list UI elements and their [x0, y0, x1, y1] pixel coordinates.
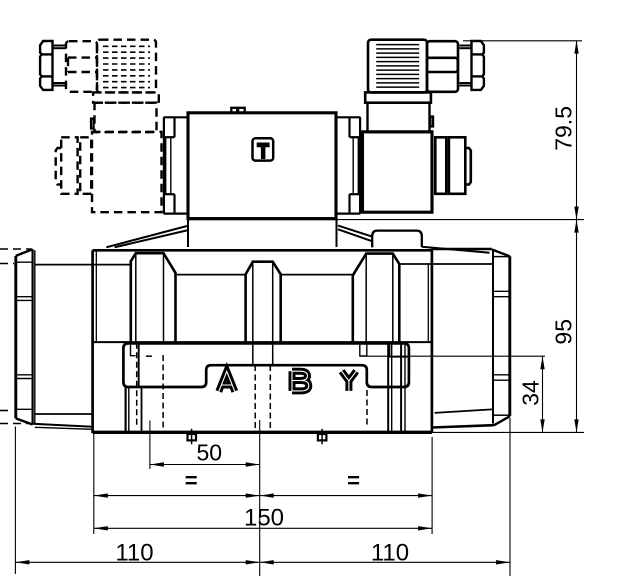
svg-text:34: 34 — [518, 380, 544, 406]
svg-text:110: 110 — [371, 540, 409, 567]
svg-text:79.5: 79.5 — [551, 106, 577, 151]
svg-text:50: 50 — [197, 440, 223, 466]
svg-text:150: 150 — [244, 505, 284, 532]
svg-text:95: 95 — [551, 319, 577, 345]
svg-text:=: = — [185, 468, 198, 493]
svg-text:110: 110 — [115, 540, 153, 567]
svg-text:=: = — [347, 468, 360, 493]
